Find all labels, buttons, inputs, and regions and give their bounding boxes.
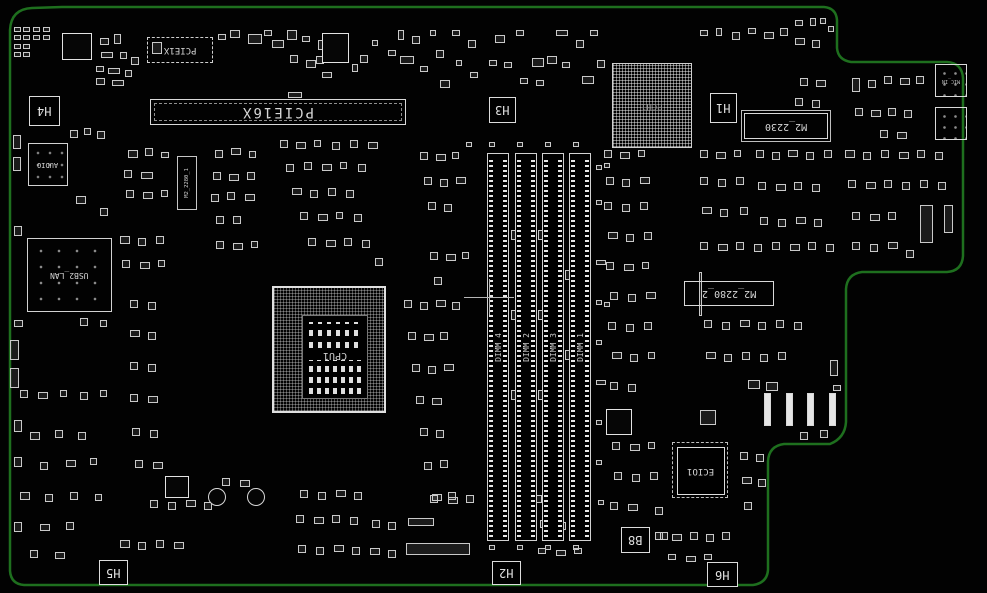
component [96,78,105,85]
component [758,479,766,487]
component [448,497,458,504]
component [23,52,30,57]
component [716,152,726,159]
component [748,28,756,34]
component [830,360,838,376]
component [122,260,130,268]
ref-designator-h1[interactable]: H1 [710,93,737,123]
component [452,302,460,310]
component [440,460,448,468]
component [352,547,360,555]
component [444,204,452,212]
component [216,216,224,224]
component [758,182,766,190]
component [794,182,802,190]
component [156,540,164,548]
component [704,320,712,328]
component [626,324,634,332]
component [778,352,786,360]
component [489,142,495,147]
component [706,534,714,542]
mounting-pad [208,488,226,506]
m2-2230-slot-label[interactable]: M2_2230 [744,113,828,139]
mic-in-text: MIC_IN [942,78,960,84]
component [630,444,640,451]
component [114,34,121,44]
component [622,204,630,212]
component [404,300,412,308]
component [30,550,38,558]
component [248,34,262,44]
component [100,320,107,327]
component [517,545,523,550]
component [466,142,472,147]
pch-text: PCH1 [641,101,663,111]
component [598,500,604,505]
component [582,76,594,84]
cpu-socket[interactable]: CPU1 [272,286,386,413]
component [96,66,104,72]
component [833,385,841,391]
component [724,354,732,362]
dimm-slot-label: DIMM 2 [516,154,536,540]
component [604,163,610,168]
component [612,352,622,359]
component [420,66,428,72]
component [432,398,442,405]
m2-2280-2-slot-label[interactable]: M2_2280_2 [684,281,774,306]
component [408,332,416,340]
component [372,40,378,46]
component [732,32,740,40]
dimm-slot-text: DIMM 1 [576,333,585,362]
component [736,242,744,250]
component [314,140,321,147]
component [597,60,605,68]
component [288,92,302,98]
component [776,184,786,191]
dimm-slot-text: DIMM 4 [494,333,503,362]
component [174,542,184,549]
header-connector[interactable] [807,393,814,426]
component [764,32,774,39]
ref-designator-text: H4 [37,104,51,118]
component [532,58,544,67]
ref-designator-h5[interactable]: H5 [99,560,128,585]
component [536,80,544,86]
ref-designator-h2[interactable]: H2 [492,561,521,585]
component [440,80,450,88]
component [33,27,40,32]
component [247,172,255,180]
component [354,492,362,500]
component [608,322,616,330]
component [590,30,598,36]
component [430,252,438,260]
component [131,57,139,65]
component [628,294,636,302]
dimm-slot-label: DIMM 1 [570,154,590,540]
dimm-slot[interactable]: DIMM 3 [542,153,564,541]
component [148,364,156,372]
component [900,78,910,85]
component [866,182,876,189]
component [436,154,446,161]
component [489,60,497,66]
component [576,40,584,48]
component [153,462,163,469]
component [795,20,803,26]
component [944,205,953,233]
ref-designator-text: H2 [499,566,513,580]
component [622,179,630,187]
component [424,334,434,341]
component [186,500,196,507]
component [424,462,432,470]
component [286,164,294,172]
component [790,244,800,251]
component [80,392,88,400]
component [362,240,370,248]
component [33,35,40,40]
component [904,110,912,118]
component [772,152,780,160]
ref-designator-h6[interactable]: H6 [707,562,738,587]
component [218,34,226,40]
component [60,390,67,397]
component [754,244,762,252]
component [148,396,158,403]
component [810,18,816,26]
component [213,172,221,180]
component [215,150,223,158]
component [852,242,860,250]
pcie1x-text: PCIE1X [164,45,197,55]
component [852,212,860,220]
component [23,35,30,40]
component [108,68,120,74]
component [796,217,806,224]
component [436,430,444,438]
component [820,18,826,24]
component [610,502,618,510]
component [420,152,428,160]
component [606,262,614,270]
component [596,165,602,170]
component [700,177,708,185]
ref-designator-h3[interactable]: H3 [489,97,516,123]
component [704,554,712,560]
component [516,30,524,36]
component [430,495,438,503]
component [720,209,728,217]
audio-text: AUDIO [37,161,58,169]
component [148,302,156,310]
component [495,35,505,43]
component [76,196,86,204]
component [124,170,132,178]
component [334,545,344,552]
component [614,472,622,480]
dimm-slot-label: DIMM 3 [543,154,563,540]
component [302,36,310,42]
crosshair-vertical [489,279,490,315]
component [233,243,243,250]
component [573,142,579,147]
component [216,241,224,249]
ec-chip[interactable]: ECIO1 [672,442,728,498]
component [884,180,892,188]
component [642,262,649,269]
component [744,502,752,510]
component [316,547,324,555]
component [800,78,808,86]
dimm-slot[interactable]: DIMM 1 [569,153,591,541]
ref-designator-text: H3 [495,103,509,117]
component [456,177,466,184]
component [358,164,366,172]
component [434,277,442,285]
component [686,556,696,562]
component [132,428,140,436]
component [444,364,454,371]
component [368,142,378,149]
component [296,515,304,523]
component [756,150,764,158]
component [700,30,708,36]
component [231,148,241,155]
component [868,80,876,88]
component [776,320,784,328]
ref-designator-h4[interactable]: H4 [29,96,60,126]
header-connector[interactable] [764,393,771,426]
component [702,207,712,214]
component [45,494,53,502]
component [430,30,436,36]
component [354,214,362,222]
component [138,238,146,246]
component [538,548,546,554]
pcie1x-slot-label[interactable]: PCIE1X [147,37,213,63]
component [700,242,708,250]
component [424,177,432,185]
component [14,27,21,32]
component [935,152,943,160]
dimm-slot-text: DIMM 2 [522,333,531,362]
component [917,150,925,158]
component [30,432,40,440]
component [340,162,347,169]
usb-lan-connector[interactable]: USB2_LAN [27,238,112,312]
component [826,244,834,252]
component [828,26,834,32]
component [620,152,630,159]
ref-designator-text: B8 [628,533,642,547]
component [20,390,28,398]
component [888,108,896,116]
component [604,150,612,158]
ref-designator-b8[interactable]: B8 [621,527,650,553]
component [906,250,914,258]
component [264,30,272,36]
component [916,76,924,84]
component [718,179,726,187]
mic-in-jack[interactable]: MIC_IN [935,64,967,97]
component [40,524,50,531]
component [794,322,802,330]
component [574,548,582,554]
component [352,64,358,72]
pch-bga-chip[interactable]: PCH1 [612,63,692,148]
component [140,262,150,269]
component [871,110,881,117]
audio-jack[interactable] [935,107,967,140]
component [640,202,648,210]
component [306,60,316,68]
component [350,517,358,525]
component [462,252,469,259]
m2-2280-1-slot-label[interactable]: M2_2280_1 [177,156,197,210]
m2-2230-text: M2_2230 [765,121,807,132]
component [700,150,708,158]
component [78,432,86,440]
component [43,27,50,32]
component [845,150,855,158]
component [300,212,308,220]
component [440,179,448,187]
component [350,140,358,148]
component [596,460,602,465]
component [14,320,23,327]
pcie16x-slot[interactable]: PCIE16X [150,99,406,125]
component [456,60,462,66]
component [23,27,30,32]
component [632,474,640,482]
component [90,458,97,465]
component [20,492,30,500]
component [806,152,814,160]
component [14,35,21,40]
component [332,142,340,150]
component [38,392,48,399]
component [504,62,512,68]
component [346,190,354,198]
component [233,216,241,224]
component [130,300,138,308]
audio-connector[interactable]: AUDIO [28,143,68,186]
component [211,194,219,202]
component [780,28,788,36]
mounting-pad [247,488,265,506]
component [628,504,638,511]
component [716,28,722,36]
component [604,302,610,307]
component [40,462,48,470]
component [388,522,396,530]
component [125,70,132,77]
component [748,380,760,389]
component [881,150,889,158]
component [168,502,176,510]
component [562,62,570,68]
component [788,150,798,157]
component [398,30,404,40]
component [156,236,164,244]
component [655,507,663,515]
header-connector[interactable] [786,393,793,426]
ic-chip[interactable] [322,33,349,63]
component [161,190,168,197]
component [740,452,748,460]
component [296,142,306,149]
component [772,242,780,250]
component [130,362,138,370]
ic-chip[interactable] [62,33,92,60]
component [626,234,634,242]
component [230,30,240,38]
component [466,495,474,503]
component [375,258,383,266]
component [596,420,602,425]
component [298,545,306,553]
component [272,40,284,48]
component [668,554,676,560]
component [640,177,650,184]
component [606,177,614,185]
component [646,292,656,299]
dimm-slot-text: DIMM 3 [549,333,558,362]
component [143,192,153,199]
component [14,457,22,467]
component [308,238,316,246]
component [700,410,716,425]
component [126,190,134,198]
pcie16x-text: PCIE16X [241,104,314,120]
component [608,232,618,239]
component [517,142,523,147]
component [101,52,113,58]
component [612,442,620,450]
component [816,80,826,87]
header-connector[interactable] [829,393,836,426]
ic-chip[interactable] [606,409,632,435]
component [14,420,22,432]
boardview-canvas[interactable]: PCIE1X PCIE16X M2_2230 M2_2280_2 M2_2280… [0,0,987,593]
component [150,430,158,438]
component [888,212,896,220]
component [314,517,324,524]
m2-2280-2-text: M2_2280_2 [702,288,756,299]
component [672,534,682,541]
component [902,182,910,190]
component [135,460,143,468]
component [300,490,308,498]
dimm-slot[interactable]: DIMM 4 [487,153,509,541]
component [336,490,346,497]
component [758,322,766,330]
component [406,543,470,555]
component [428,366,436,374]
component [848,180,856,188]
ic-chip[interactable] [165,476,189,498]
dimm-slot[interactable]: DIMM 2 [515,153,537,541]
component [888,242,898,249]
component [14,52,21,57]
component [400,56,414,64]
component [740,207,748,215]
component [70,492,78,500]
component [80,318,88,326]
